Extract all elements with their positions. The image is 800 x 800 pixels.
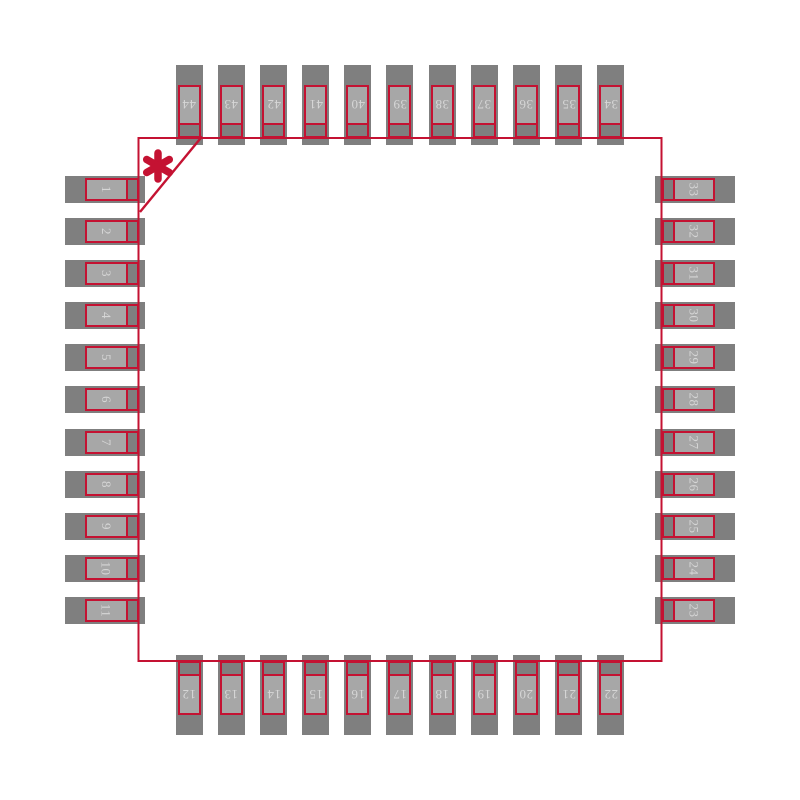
pad-pin-1-land: [85, 178, 139, 201]
pad-pin-19-land: [473, 661, 496, 715]
pad-pin-10-land: [85, 557, 139, 580]
pad-pin-41-land: [304, 85, 327, 139]
pad-pin-22-land: [599, 661, 622, 715]
pin1-chamfer-line: [140, 137, 202, 213]
pad-pin-20-land: [515, 661, 538, 715]
footprint-canvas: 1234567891011444342414039383736353433323…: [0, 0, 800, 800]
pad-pin-9-inner-segment: [126, 517, 137, 536]
pad-pin-12-inner-segment: [180, 663, 199, 676]
pad-pin-44-inner-segment: [180, 123, 199, 136]
pad-pin-13-inner-segment: [222, 663, 241, 676]
pad-pin-15-land: [304, 661, 327, 715]
pad-pin-8-inner-segment: [126, 475, 137, 494]
pad-pin-17-land: [388, 661, 411, 715]
pad-pin-36-land: [515, 85, 538, 139]
pin1-marker-asterisk: [147, 153, 170, 179]
pad-pin-25-land: [662, 515, 716, 538]
pad-pin-16-land: [346, 661, 369, 715]
pad-pin-28-inner-segment: [664, 390, 675, 409]
pad-pin-11-land: [85, 599, 139, 622]
pad-pin-40-inner-segment: [348, 123, 367, 136]
pad-pin-14-land: [262, 661, 285, 715]
pad-pin-6-land: [85, 388, 139, 411]
pad-pin-11-inner-segment: [126, 601, 137, 620]
pad-pin-25-inner-segment: [664, 517, 675, 536]
pad-pin-18-inner-segment: [433, 663, 452, 676]
pad-pin-40-land: [346, 85, 369, 139]
pad-pin-31-inner-segment: [664, 264, 675, 283]
pad-pin-18-land: [431, 661, 454, 715]
pad-pin-34-land: [599, 85, 622, 139]
pad-pin-21-land: [557, 661, 580, 715]
pad-pin-43-land: [220, 85, 243, 139]
pad-pin-33-land: [662, 178, 716, 201]
pad-pin-7-inner-segment: [126, 433, 137, 452]
pad-pin-12-land: [178, 661, 201, 715]
pad-pin-7-land: [85, 431, 139, 454]
pad-pin-26-inner-segment: [664, 475, 675, 494]
package-outline: [139, 138, 662, 661]
pad-pin-35-inner-segment: [559, 123, 578, 136]
pad-pin-35-land: [557, 85, 580, 139]
pad-pin-2-land: [85, 220, 139, 243]
pad-pin-44-land: [178, 85, 201, 139]
pad-pin-10-inner-segment: [126, 559, 137, 578]
pad-pin-37-land: [473, 85, 496, 139]
pad-pin-29-land: [662, 346, 716, 369]
pad-pin-24-land: [662, 557, 716, 580]
pad-pin-39-inner-segment: [390, 123, 409, 136]
pad-pin-38-inner-segment: [433, 123, 452, 136]
pad-pin-32-inner-segment: [664, 222, 675, 241]
pad-pin-14-inner-segment: [264, 663, 283, 676]
pad-pin-43-inner-segment: [222, 123, 241, 136]
pad-pin-17-inner-segment: [390, 663, 409, 676]
pad-pin-30-inner-segment: [664, 306, 675, 325]
pad-pin-31-land: [662, 262, 716, 285]
pad-pin-27-land: [662, 431, 716, 454]
pad-pin-6-inner-segment: [126, 390, 137, 409]
pad-pin-37-inner-segment: [475, 123, 494, 136]
pad-pin-15-inner-segment: [306, 663, 325, 676]
pad-pin-26-land: [662, 473, 716, 496]
pad-pin-27-inner-segment: [664, 433, 675, 452]
pad-pin-3-land: [85, 262, 139, 285]
pad-pin-8-land: [85, 473, 139, 496]
pad-pin-42-land: [262, 85, 285, 139]
pad-pin-38-land: [431, 85, 454, 139]
pad-pin-5-land: [85, 346, 139, 369]
pad-pin-34-inner-segment: [601, 123, 620, 136]
pad-pin-23-inner-segment: [664, 601, 675, 620]
pad-pin-9-land: [85, 515, 139, 538]
pad-pin-20-inner-segment: [517, 663, 536, 676]
pad-pin-42-inner-segment: [264, 123, 283, 136]
pad-pin-23-land: [662, 599, 716, 622]
pad-pin-41-inner-segment: [306, 123, 325, 136]
pad-pin-4-land: [85, 304, 139, 327]
pad-pin-24-inner-segment: [664, 559, 675, 578]
pad-pin-32-land: [662, 220, 716, 243]
pad-pin-33-inner-segment: [664, 180, 675, 199]
pad-pin-36-inner-segment: [517, 123, 536, 136]
pad-pin-19-inner-segment: [475, 663, 494, 676]
pad-pin-29-inner-segment: [664, 348, 675, 367]
pad-pin-28-land: [662, 388, 716, 411]
pad-pin-4-inner-segment: [126, 306, 137, 325]
pad-pin-22-inner-segment: [601, 663, 620, 676]
pad-pin-16-inner-segment: [348, 663, 367, 676]
pad-pin-5-inner-segment: [126, 348, 137, 367]
pad-pin-1-inner-segment: [126, 180, 137, 199]
pad-pin-39-land: [388, 85, 411, 139]
pad-pin-2-inner-segment: [126, 222, 137, 241]
pad-pin-3-inner-segment: [126, 264, 137, 283]
pad-pin-21-inner-segment: [559, 663, 578, 676]
pad-pin-30-land: [662, 304, 716, 327]
pad-pin-13-land: [220, 661, 243, 715]
